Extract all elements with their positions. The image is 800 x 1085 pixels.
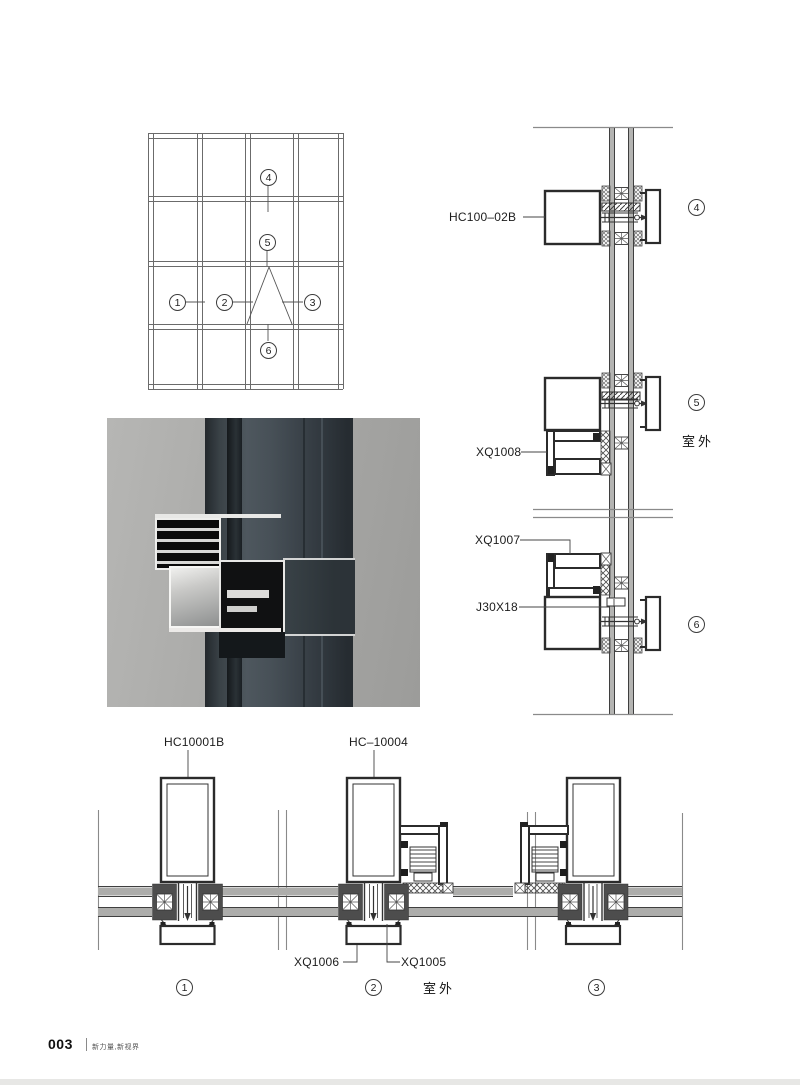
callout-elevation-3: 3 xyxy=(304,294,321,311)
label-hc10001b: HC10001B xyxy=(164,735,224,749)
elevation-diagram xyxy=(148,133,344,390)
leader-xq1007 xyxy=(520,540,570,554)
photo-upper-profile-cut xyxy=(155,518,221,570)
page-edge-shadow xyxy=(0,1079,800,1085)
outdoor-label-bottom: 室外 xyxy=(423,982,455,996)
vertical-detail-5 xyxy=(521,373,660,475)
label-xq1006: XQ1006 xyxy=(294,955,339,969)
label-hc-10004: HC–10004 xyxy=(349,735,408,749)
photo-cavity-cut xyxy=(219,560,285,634)
page-number: 003 xyxy=(48,1036,73,1052)
callout-section-4: 4 xyxy=(688,199,705,216)
callout-plan-2: 2 xyxy=(365,979,382,996)
vertical-detail-4 xyxy=(523,186,660,246)
mullion-box xyxy=(545,191,600,244)
callout-elevation-4: 4 xyxy=(260,169,277,186)
callout-elevation-1: 1 xyxy=(169,294,186,311)
callout-plan-3: 3 xyxy=(588,979,605,996)
steel-angle-j30x18 xyxy=(607,598,625,606)
mullion-box xyxy=(161,778,214,882)
photo-gasket-shadow xyxy=(219,632,285,658)
mullion-box xyxy=(545,597,600,649)
outdoor-label-top: 室外 xyxy=(682,435,714,449)
vertical-detail-6 xyxy=(519,540,660,653)
vent-triangle-symbol xyxy=(247,267,292,324)
footer-divider xyxy=(86,1038,87,1051)
label-xq1007: XQ1007 xyxy=(475,533,520,547)
leader-xq1006 xyxy=(343,945,357,962)
mullion-box xyxy=(545,378,600,430)
vent-frame-right xyxy=(400,822,453,893)
callout-elevation-6: 6 xyxy=(260,342,277,359)
mullion-box xyxy=(567,778,620,882)
page-slogan: 新力量,新视界 xyxy=(92,1042,139,1052)
label-hc100-02b: HC100–02B xyxy=(449,210,516,224)
callout-section-5: 5 xyxy=(688,394,705,411)
catalog-page: 4 5 1 2 3 6 HC100–02B 4 5 室外 XQ1008 XQ10… xyxy=(0,0,800,1085)
mullion-box xyxy=(347,778,400,882)
plan-section-drawings xyxy=(98,750,683,962)
plan-detail-2 xyxy=(339,750,454,962)
label-j30x18: J30X18 xyxy=(476,600,518,614)
photo-cap-face xyxy=(283,558,355,636)
photo-aluminum-box-cut xyxy=(169,566,221,628)
callout-elevation-2: 2 xyxy=(216,294,233,311)
photo-cavity-web2 xyxy=(227,606,257,612)
plan-detail-3 xyxy=(515,778,628,944)
label-xq1008: XQ1008 xyxy=(476,445,521,459)
vent-frame-left xyxy=(515,822,568,893)
label-xq1005: XQ1005 xyxy=(401,955,446,969)
callout-section-6: 6 xyxy=(688,616,705,633)
callout-elevation-5: 5 xyxy=(259,234,276,251)
vertical-section-drawings xyxy=(519,128,673,715)
photo-cavity-web xyxy=(227,590,269,598)
callout-plan-1: 1 xyxy=(176,979,193,996)
profile-photo xyxy=(107,418,420,707)
plan-detail-1 xyxy=(153,750,223,944)
elevation-callout-leaders xyxy=(186,186,303,341)
